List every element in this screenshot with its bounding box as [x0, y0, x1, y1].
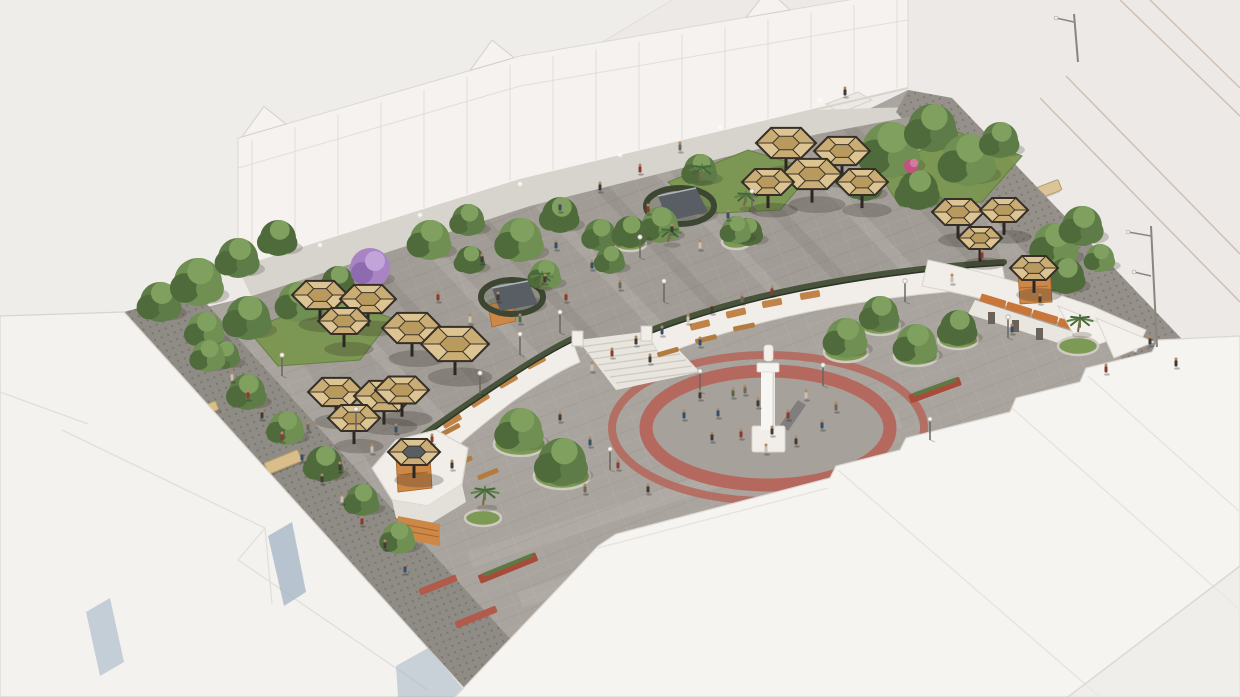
render-viewport [0, 0, 1240, 697]
plaza-render [0, 0, 1240, 697]
